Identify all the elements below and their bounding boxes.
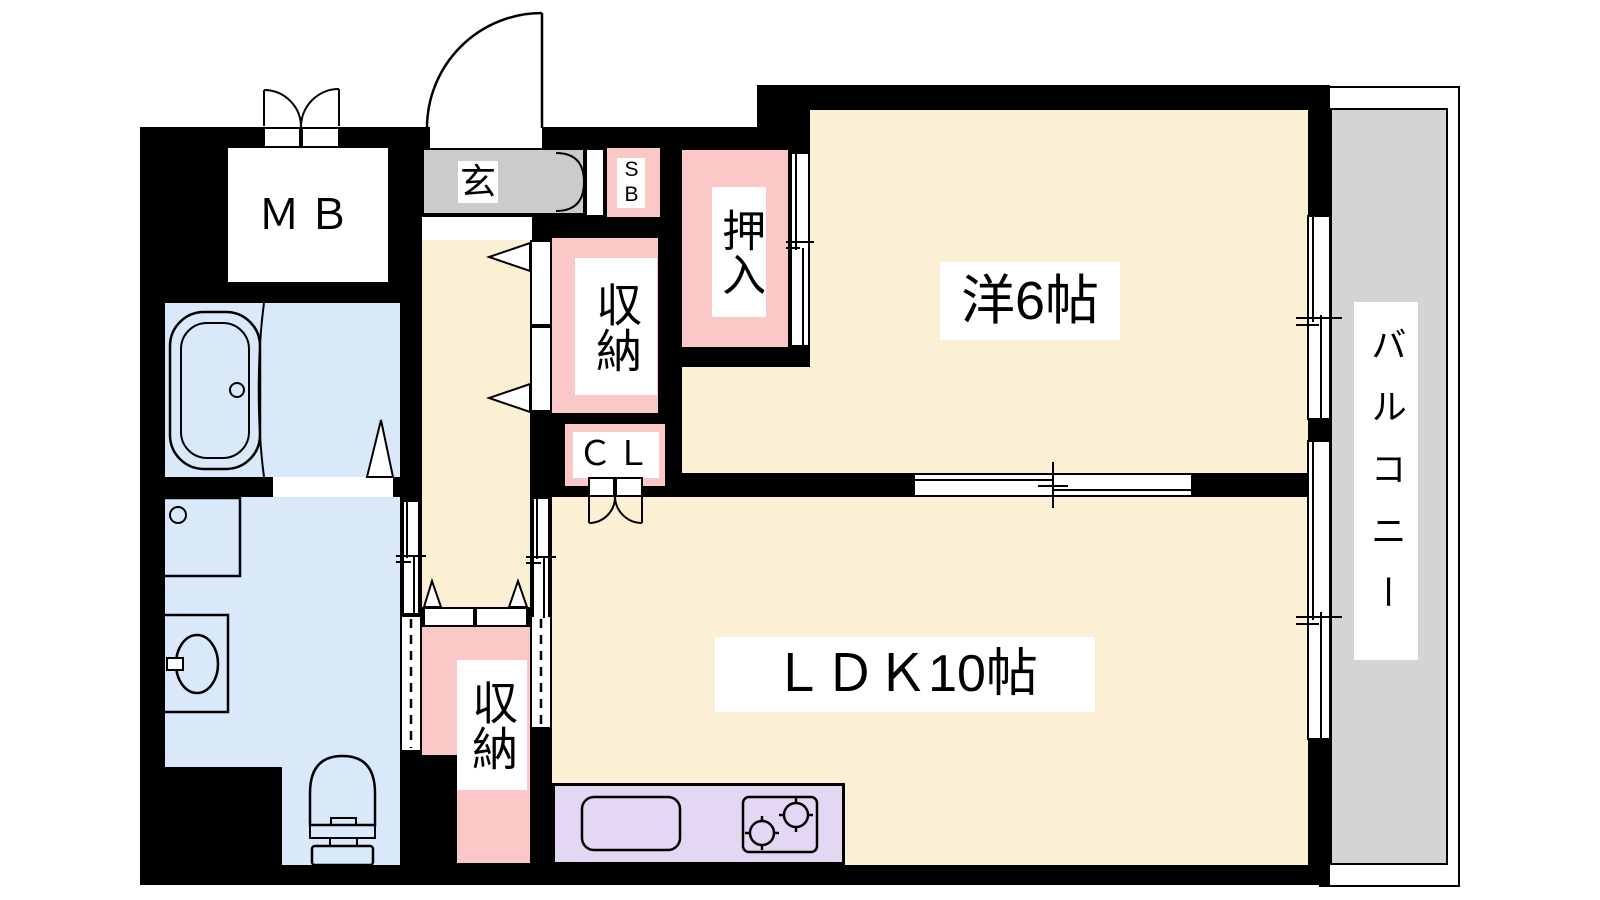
closet-door-panel-1	[588, 477, 615, 497]
meter-box-label: ＭＢ	[258, 193, 358, 237]
storage-lower-label: 収納	[457, 660, 527, 790]
opening-strip-left	[402, 617, 420, 750]
entrance-label: 玄	[458, 161, 498, 203]
shoe-box-door-panel	[585, 148, 605, 217]
room-divider-sliding-door	[913, 473, 1193, 497]
bathroom-floor	[165, 303, 400, 477]
bathroom-door-opening	[273, 477, 393, 497]
storage-upper-label: 収納	[575, 258, 657, 395]
ldk-label: ＬＤＫ10帖	[715, 637, 1095, 712]
floorplan: ＭＢ SB 玄 収納 収納 ＣＬ 押入 洋6帖 ＬＤＫ10帖 バルコニー	[0, 0, 1600, 900]
hallway-ldk-sliding-door	[532, 497, 550, 620]
shoe-box-label: SB	[617, 158, 645, 208]
closet-label: ＣＬ	[573, 432, 659, 478]
oshiire-label: 押入	[712, 187, 766, 317]
window-west-room	[1307, 215, 1331, 420]
entrance-floor	[422, 148, 585, 215]
washroom-sliding-door	[402, 500, 420, 615]
closet-door-panel-2	[615, 477, 643, 497]
washroom-floor	[165, 497, 400, 767]
entrance-step	[422, 217, 532, 240]
kitchen-counter	[552, 783, 845, 865]
meter-box-double-doors	[264, 89, 339, 127]
entrance-door-opening	[430, 127, 542, 148]
storage-upper-door-panel-2	[530, 326, 552, 412]
hallway-floor	[422, 240, 530, 607]
balcony-label: バルコニー	[1354, 302, 1418, 660]
meter-box: ＭＢ	[228, 148, 388, 282]
entrance-door-swing	[427, 13, 542, 128]
washroom-floor-extension	[282, 767, 400, 865]
storage-lower-door-panel-2	[475, 607, 528, 627]
opening-strip-right	[532, 617, 550, 727]
oshiire-fusuma-door	[790, 152, 810, 347]
window-ldk	[1307, 440, 1331, 740]
storage-lower-door-panel-1	[423, 607, 475, 627]
western-room-floor-2	[682, 367, 810, 473]
storage-upper-door-panel-1	[530, 240, 552, 326]
meter-box-door-panel-2	[301, 127, 340, 148]
western-room-label: 洋6帖	[940, 262, 1120, 340]
meter-box-door-panel-1	[263, 127, 301, 148]
